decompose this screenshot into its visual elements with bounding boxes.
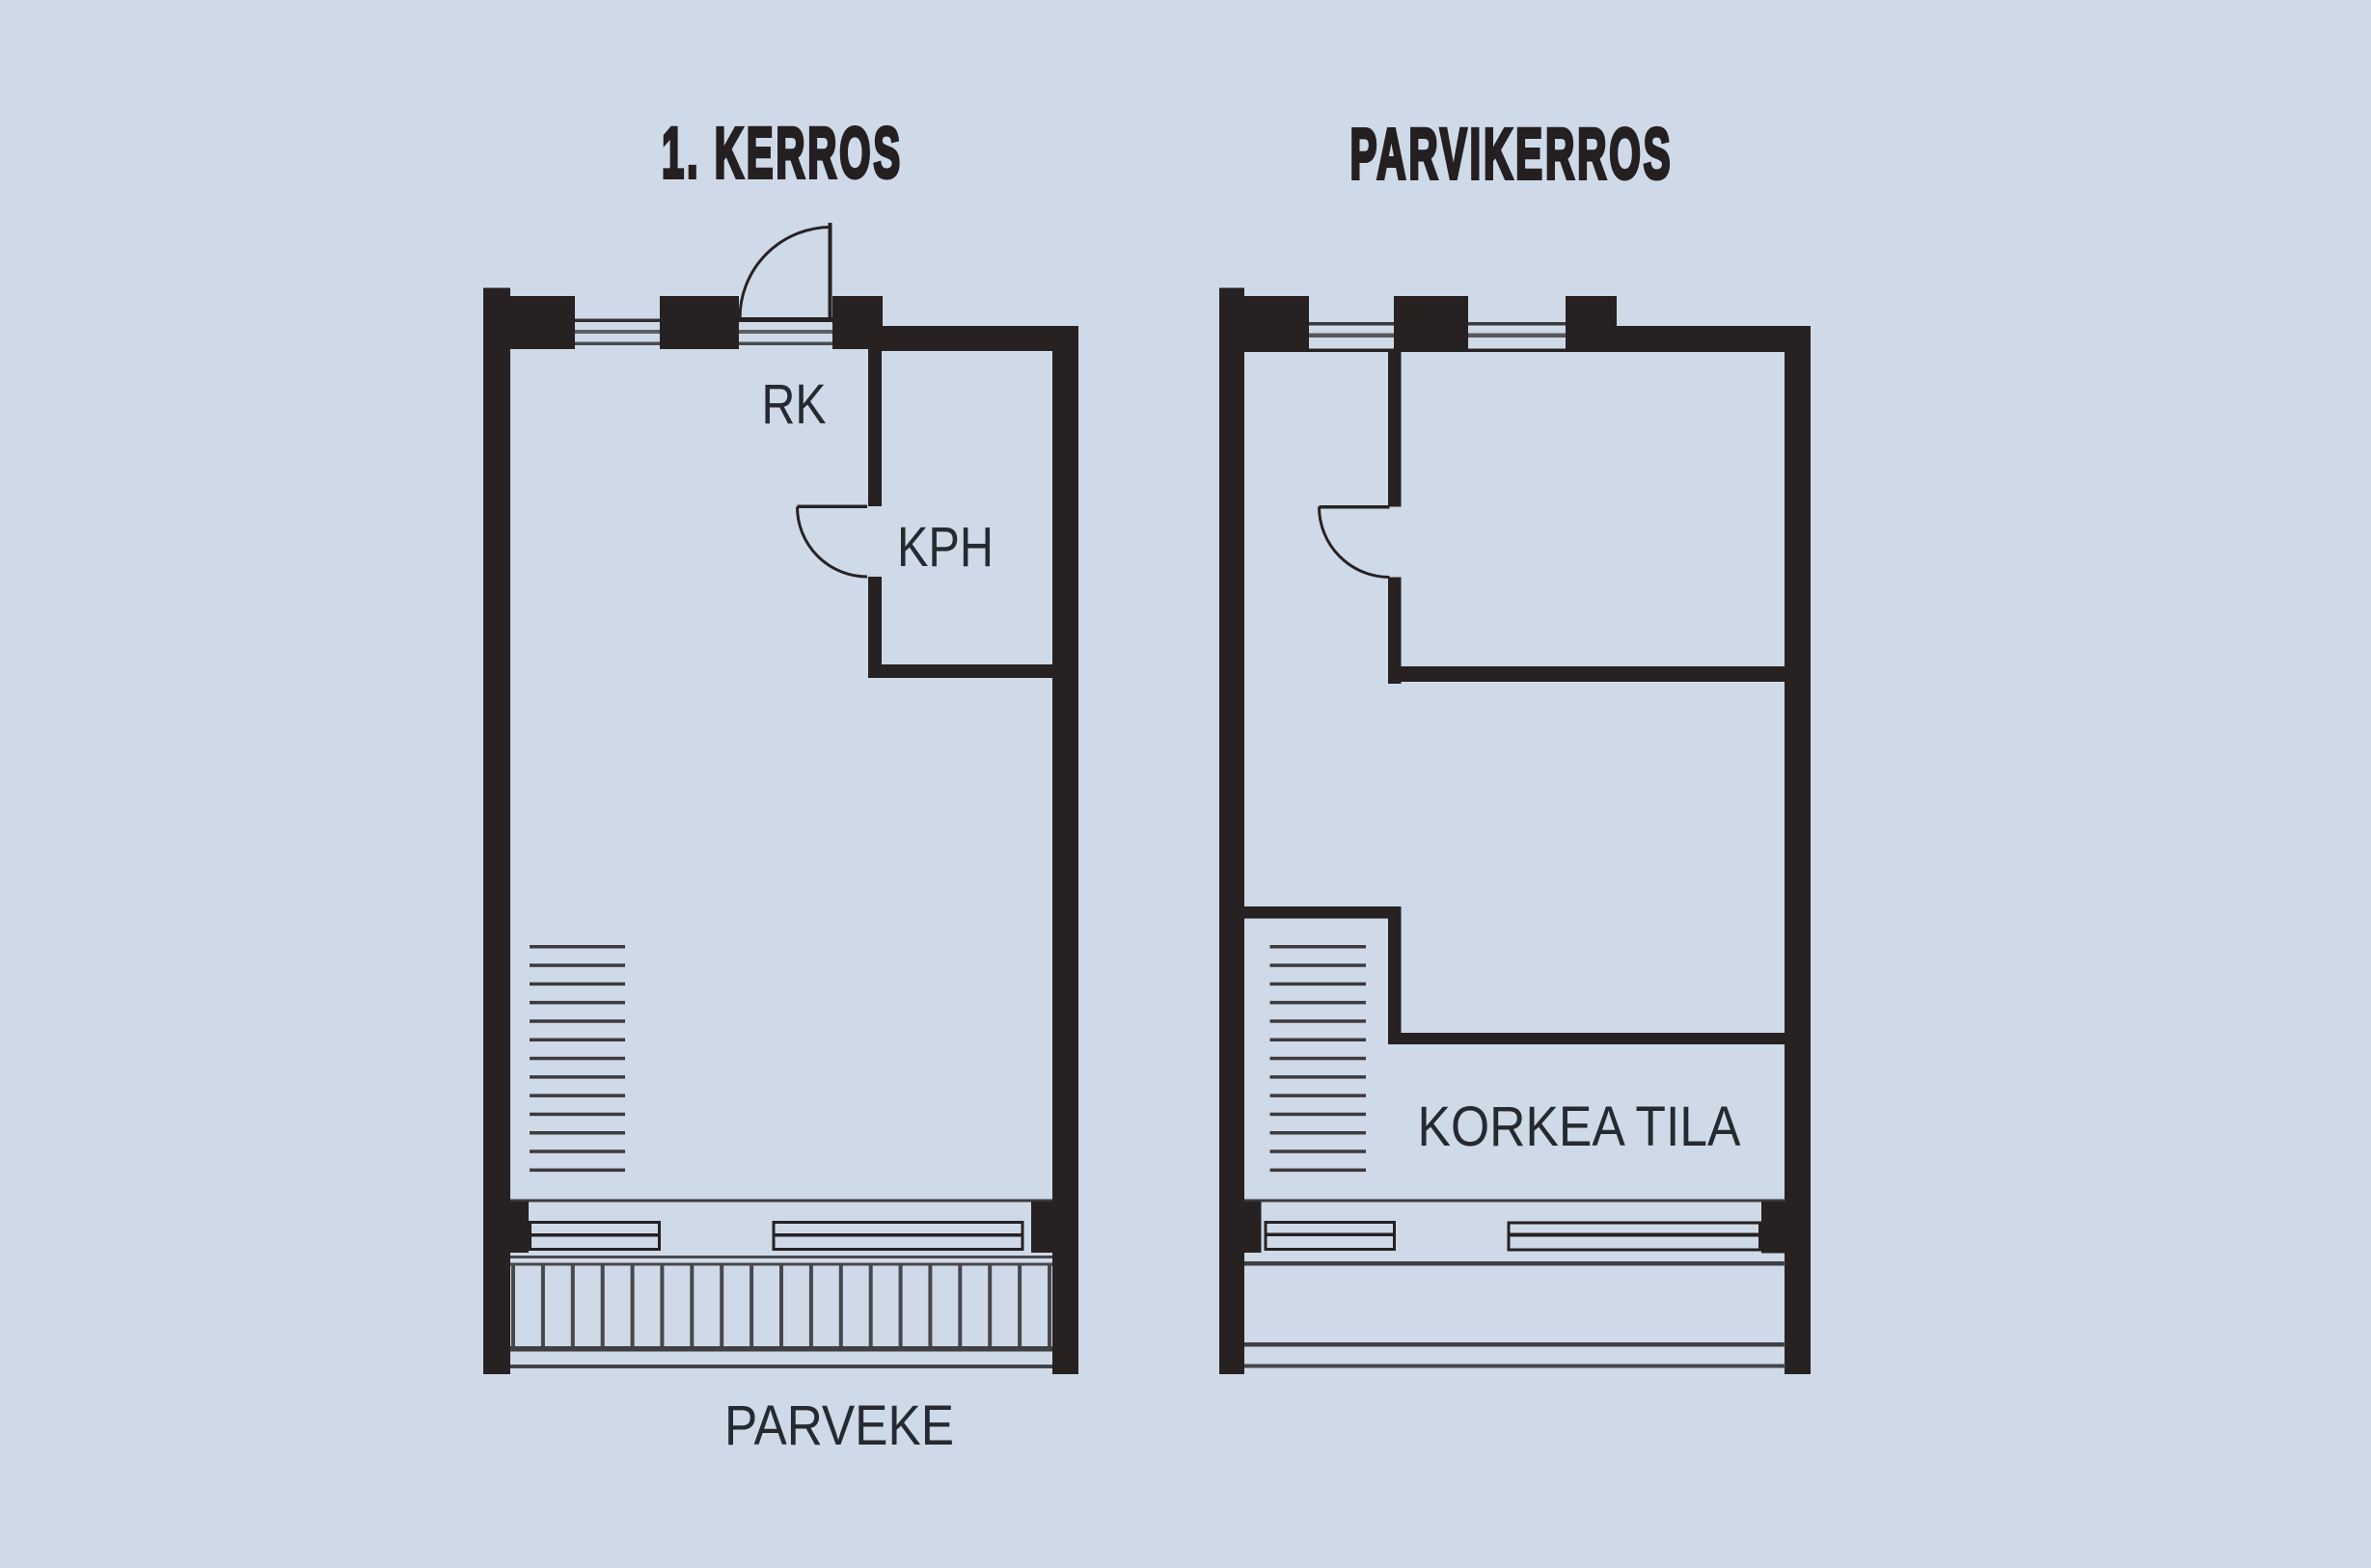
- svg-text:PARVEKE: PARVEKE: [724, 1394, 954, 1457]
- svg-text:KORKEA TILA: KORKEA TILA: [1418, 1095, 1741, 1158]
- svg-text:PARVIKERROS: PARVIKERROS: [1350, 114, 1674, 194]
- svg-text:KPH: KPH: [897, 516, 994, 579]
- svg-text:RK: RK: [762, 373, 827, 436]
- svg-text:1. KERROS: 1. KERROS: [662, 113, 903, 193]
